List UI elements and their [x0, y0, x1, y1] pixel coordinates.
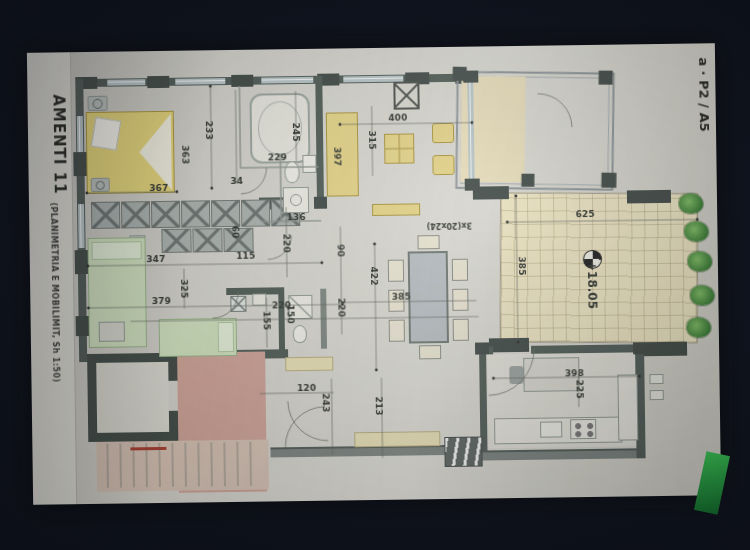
dim-label: 136	[287, 212, 306, 222]
dim-label: 213	[374, 396, 384, 415]
dim-label: 625	[576, 209, 595, 219]
dim-label: 315	[367, 131, 377, 150]
dim-label: 155	[262, 311, 272, 330]
dim-label: 385	[392, 291, 411, 301]
dim-label: 229	[268, 152, 287, 162]
dim-label: 245	[291, 123, 301, 142]
dim-label: 150	[285, 305, 295, 324]
dim-label: 397	[332, 147, 342, 166]
dim-label: 367	[149, 183, 168, 193]
dim-label: 400	[388, 113, 407, 123]
dim-label: 325	[179, 279, 189, 298]
sheet-number: a · P2 / A5	[696, 57, 712, 131]
dim-label: 115	[236, 251, 255, 261]
dim-label: 220	[336, 298, 346, 317]
dim-label: 233	[204, 121, 214, 140]
dim-label: 120	[297, 383, 316, 393]
dim-label: +18.05	[585, 261, 600, 309]
dim-label: 379	[152, 296, 171, 306]
dim-label: 34	[230, 176, 243, 186]
dim-label: 398	[565, 368, 584, 378]
dim-label: 422	[369, 267, 379, 286]
dim-label: 347	[146, 254, 165, 264]
dim-label: 225	[574, 380, 584, 399]
dim-label: 243	[321, 393, 331, 412]
dim-label: 363	[180, 145, 190, 164]
dim-label: 220	[281, 234, 291, 253]
dim-labels-layer: 3673632333422924539731540013660115220902…	[27, 43, 721, 505]
dim-label: 90	[336, 244, 346, 257]
dim-label: 385	[517, 256, 527, 275]
dim-label: 60	[230, 226, 240, 239]
floorplan-photo: AMENTI 11 (PLANIMETRIA E MOBILIMIT, Sh 1…	[27, 43, 721, 505]
dim-label: 3x(20x24)	[427, 220, 473, 230]
